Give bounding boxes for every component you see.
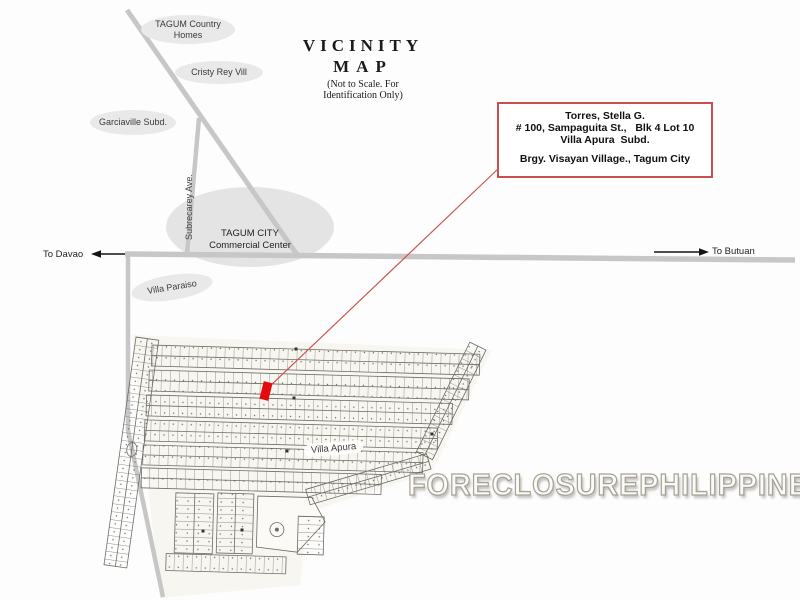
page-title-sub: MAP (288, 57, 438, 77)
info-address: # 100, Sampaguita St., Blk 4 Lot 10 (499, 122, 711, 134)
landmark-garciaville-subd: Garciaville Subd. (90, 110, 176, 135)
property-info-box: Torres, Stella G. # 100, Sampaguita St.,… (497, 102, 713, 178)
plat-block (216, 493, 254, 554)
landmark-label: Commercial Center (195, 240, 305, 252)
info-barangay: Brgy. Visayan Village., Tagum City (499, 153, 711, 165)
vicinity-map-page: VICINITY MAP (Not to Scale. For Identifi… (0, 0, 800, 600)
landmark-commercial-center-label: TAGUM CITY Commercial Center (195, 228, 305, 251)
landmark-cristy-rey-vill: Cristy Rey Vill (175, 61, 263, 84)
landmark-tagum-country-homes: TAGUM Country Homes (141, 15, 235, 44)
landmark-label: Homes (174, 30, 203, 41)
road-label-subrecarey-ave: Subrecarey Ave. (184, 167, 196, 247)
plat-strip (166, 554, 286, 574)
landmark-label: Villa Paraiso (147, 278, 198, 297)
davao-arrow (91, 250, 125, 258)
page-title: VICINITY (288, 36, 438, 56)
road-label-to-davao: To Davao (43, 249, 83, 260)
landmark-label: TAGUM Country (155, 19, 221, 30)
landmark-label: Garciaville Subd. (99, 117, 167, 128)
landmark-label: TAGUM CITY (195, 228, 305, 240)
landmark-label: Cristy Rey Vill (191, 67, 247, 78)
title-note-line1: (Not to Scale. For (288, 79, 438, 90)
map-title-block: VICINITY MAP (Not to Scale. For Identifi… (288, 36, 438, 101)
info-subdivision: Villa Apura Subd. (499, 134, 711, 146)
watermark: FORECLOSUREPHILIPPINES.COM (408, 467, 800, 503)
road-label-to-butuan: To Butuan (712, 246, 755, 257)
butuan-arrow (654, 248, 709, 256)
info-owner: Torres, Stella G. (499, 110, 711, 122)
plat-block (174, 493, 214, 554)
plat-block (297, 516, 324, 555)
title-note-line2: Identification Only) (288, 90, 438, 101)
